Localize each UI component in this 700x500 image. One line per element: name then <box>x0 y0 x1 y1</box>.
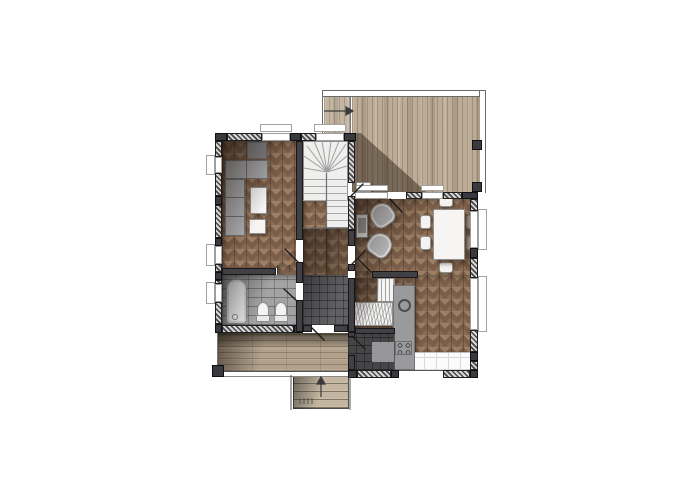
floor-plan-canvas <box>0 0 700 500</box>
plan-linework <box>0 0 700 500</box>
stair-winder-fan <box>304 141 347 172</box>
stair-railing <box>303 173 348 228</box>
steps-direction-arrow <box>317 377 325 397</box>
steps-tick-marks <box>300 398 312 404</box>
deck-direction-arrow <box>324 107 353 115</box>
door-swing-leaves <box>284 184 402 349</box>
